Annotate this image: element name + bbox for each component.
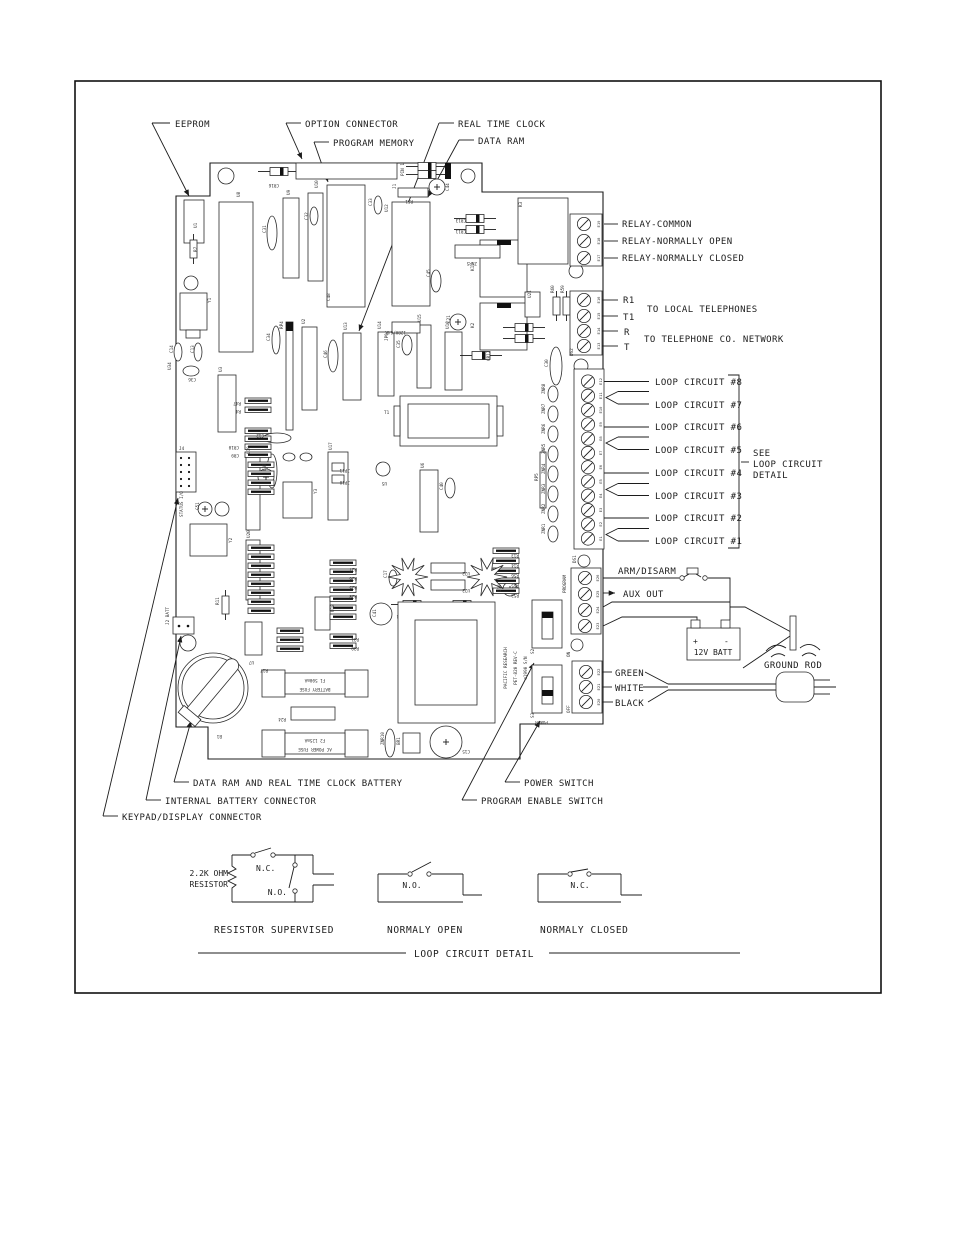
ic-outline [403, 733, 420, 753]
terminal-id: E18 [596, 237, 601, 245]
capacitor-outline [328, 340, 338, 372]
component-label: R24 [278, 716, 286, 722]
round-part [376, 462, 390, 476]
terminal-id: E6 [598, 464, 603, 469]
component-label: C12 [256, 432, 264, 438]
terminal-id: E25 [595, 591, 600, 598]
component-label: ZNR3 [541, 483, 547, 494]
ic-outline [343, 333, 361, 400]
ic-outline [315, 597, 330, 630]
component-label: C34 [266, 333, 272, 341]
component-label: U14 [377, 321, 383, 329]
component-label: C35 [396, 340, 402, 348]
ic-outline [302, 327, 317, 410]
terminal-t1: T1 [623, 313, 635, 323]
diode-outline [466, 226, 484, 234]
capacitor-outline [548, 466, 558, 482]
component-label: ZNR7 [541, 403, 547, 414]
component-label: JP10 [339, 479, 350, 485]
component-label: ZNR5 [541, 443, 547, 454]
component-label: ON [566, 651, 572, 657]
callout-power-switch: POWER SWITCH [524, 779, 594, 789]
callout-option-connector: OPTION CONNECTOR [305, 120, 398, 130]
ic-outline [219, 202, 253, 352]
terminal-id: E7 [598, 451, 603, 456]
component-label: C30 [544, 359, 550, 367]
component-label: R13 [511, 552, 519, 558]
component-label: ZNR8 [541, 383, 547, 394]
terminal-id: E8 [598, 436, 603, 441]
label-aux-out: AUX OUT [623, 590, 664, 600]
terminal-id: E14 [596, 327, 601, 335]
ic-outline [394, 406, 400, 436]
callout-clock-battery: DATA RAM AND REAL TIME CLOCK BATTERY [193, 779, 403, 789]
ic-outline [173, 617, 194, 634]
capacitor-outline [385, 729, 395, 757]
callout-data-ram: DATA RAM [478, 137, 525, 147]
ic-outline [328, 452, 348, 520]
terminal-id: E21 [596, 683, 601, 691]
terminal-id: E15 [596, 313, 601, 320]
label-loop-1: LOOP CIRCUIT #1 [655, 537, 742, 547]
terminal-id: E3 [598, 508, 603, 513]
component-label: C44 [445, 183, 451, 191]
component-label: R7 [193, 246, 199, 252]
fuse-f2-name: AC POWER FUSE [298, 746, 332, 752]
component-label: C40 [439, 482, 445, 490]
component-label: U34 [167, 362, 173, 370]
ic-outline [398, 188, 428, 197]
label-loop-2: LOOP CIRCUIT #2 [655, 514, 742, 524]
component-label: CR16 [268, 182, 279, 188]
component-label: K1 [470, 265, 476, 271]
component-label: U7 [248, 659, 254, 665]
ic-outline [180, 293, 207, 330]
component-label: C32 [304, 212, 310, 220]
detail-sw1-nc: N.C. [256, 864, 275, 873]
round-part [184, 276, 198, 290]
callout-eeprom: EEPROM [175, 120, 210, 130]
round-part [215, 502, 229, 516]
label-relay-no: RELAY-NORMALLY OPEN [622, 237, 733, 247]
capacitor-outline [548, 506, 558, 522]
component-label: Y3 [313, 488, 319, 494]
component-label: S2 [530, 648, 536, 654]
resistor-vertical [563, 297, 570, 315]
component-label: J1 [392, 183, 398, 189]
component-label: ZNR2 [541, 503, 547, 514]
note-telephone-network: TO TELEPHONE CO. NETWORK [644, 335, 784, 345]
component-label: R47 [233, 400, 241, 406]
component-label: POWER [535, 719, 548, 725]
fuse-f1-rating: F1 500mA [304, 677, 325, 683]
component-label: BR1 [396, 737, 402, 745]
diode-outline [466, 215, 484, 223]
component-label: C36 [188, 376, 196, 382]
ground-rod-icon [790, 616, 796, 650]
component-label: OFF [566, 705, 572, 713]
ic-outline [455, 245, 500, 258]
component-label: RP4 [279, 321, 285, 329]
component-label: T1 [384, 410, 390, 416]
diode-outline [270, 168, 288, 176]
detail-sw1-no: N.O. [268, 888, 287, 897]
component-label: K2 [470, 322, 476, 328]
component-label: PROGRAM [562, 574, 568, 593]
capacitor-outline [183, 366, 199, 376]
component-label: U13 [343, 322, 349, 330]
component-label: U18 [330, 604, 336, 612]
ic-outline [497, 406, 503, 436]
component-label: J4 [179, 446, 185, 452]
component-label: U6 [420, 462, 426, 468]
capacitor-outline [548, 526, 558, 542]
component-label: ZNR4 [541, 463, 547, 474]
label-loop-4: LOOP CIRCUIT #4 [655, 469, 742, 479]
capacitor-outline [550, 347, 562, 385]
terminal-id: E22 [596, 669, 601, 676]
component-label: U10 [314, 180, 320, 188]
component-label: R25 [349, 584, 357, 590]
component-label: ZNR1 [541, 523, 547, 534]
terminal-id: E10 [598, 406, 603, 414]
pcb-layout-diagram: EEPROM OPTION CONNECTOR PROGRAM MEMORY R… [0, 0, 954, 1235]
ic-outline [245, 622, 262, 655]
component-label: C13 [190, 345, 196, 353]
terminal-id: E2 [598, 522, 603, 527]
component-label: CR10 [228, 444, 239, 450]
label-loop-6: LOOP CIRCUIT #6 [655, 423, 742, 433]
see-note-2: LOOP CIRCUIT [753, 460, 823, 470]
detail-title: LOOP CIRCUIT DETAIL [414, 949, 534, 960]
detail-sw3-nc: N.C. [570, 881, 589, 890]
label-green-wire: GREEN [615, 669, 644, 679]
polarity-mark [542, 690, 553, 696]
component-label: R51 [405, 198, 413, 204]
terminal-id: E4 [598, 493, 603, 498]
capacitor-outline [374, 196, 382, 214]
terminal-id: E26 [595, 574, 600, 582]
capacitor-outline [548, 406, 558, 422]
terminal-id: E19 [596, 220, 601, 228]
terminal-r: R [624, 328, 630, 338]
terminal-id: E1 [598, 536, 603, 541]
ic-outline [540, 452, 546, 508]
ic-outline [518, 198, 568, 264]
component-label: C41 [372, 609, 378, 617]
capacitor-outline [300, 453, 312, 461]
capacitor-outline [272, 326, 280, 354]
callout-program-enable-switch: PROGRAM ENABLE SWITCH [481, 797, 603, 807]
label-loop-8: LOOP CIRCUIT #8 [655, 378, 742, 388]
component-label: R59 [560, 285, 566, 293]
terminal-r1: R1 [623, 296, 635, 306]
battery-minus-sign: - [724, 637, 729, 646]
ic-outline [262, 670, 285, 697]
component-label: C17 [383, 570, 389, 578]
component-label: R30 [351, 645, 359, 651]
component-label: U21 [527, 290, 533, 298]
capacitor-outline [310, 207, 318, 225]
callout-keypad-connector: KEYPAD/DISPLAY CONNECTOR [122, 813, 262, 823]
capacitor-outline [174, 343, 182, 361]
ic-outline [262, 730, 285, 757]
ic-outline [283, 198, 299, 278]
component-label: U23 [462, 587, 470, 593]
battery-plus-sign: + [693, 637, 698, 646]
capacitor-outline [548, 386, 558, 402]
terminal-id: E17 [596, 255, 601, 262]
component-label: C51 [195, 502, 201, 510]
label-ground-rod: GROUND ROD [764, 661, 822, 671]
terminal-id: E23 [595, 623, 600, 630]
component-label: C48 [326, 293, 332, 301]
polarity-mark [286, 322, 293, 331]
resistor-vertical [553, 297, 560, 315]
component-label: U8 [236, 191, 242, 197]
terminal-id: E9 [598, 421, 603, 426]
see-note-1: SEE [753, 449, 770, 459]
ic-outline [184, 200, 204, 243]
pushbutton-icon [687, 568, 698, 574]
component-label: U19 [246, 446, 252, 454]
component-label: C37 [262, 463, 268, 471]
component-label: U15 [417, 314, 423, 322]
component-label: C46 [323, 350, 329, 358]
resistor-vertical [222, 596, 229, 614]
silkscreen-serial: ©1990 S/N [523, 656, 529, 680]
component-label: DS1 [572, 555, 578, 563]
component-label: U16 [445, 321, 451, 329]
component-label: CR13 [455, 217, 466, 223]
capacitor-outline [267, 216, 277, 250]
diode-outline [418, 171, 436, 179]
terminal-id: E5 [598, 479, 603, 484]
fuse-f2-rating: F2 125mA [304, 737, 325, 743]
detail-sw2-no: N.O. [402, 881, 421, 890]
component-label: R4 [235, 408, 241, 414]
component-label: ZNR5 [466, 260, 477, 266]
component-label: ZNR6 [541, 423, 547, 434]
ic-outline [186, 330, 200, 338]
ic-outline [190, 524, 227, 556]
component-label: R31 [351, 636, 359, 642]
component-label: R26 [349, 575, 357, 581]
callout-program-memory: PROGRAM MEMORY [333, 139, 415, 149]
component-label: STATUS I/O [179, 491, 185, 517]
diagram-page: EEPROM OPTION CONNECTOR PROGRAM MEMORY R… [0, 0, 954, 1235]
component-label: C15 [462, 748, 470, 754]
callout-internal-battery: INTERNAL BATTERY CONNECTOR [165, 797, 316, 807]
polarity-mark [542, 612, 553, 618]
capacitor-outline [402, 335, 412, 355]
terminal-id: E13 [596, 343, 601, 350]
silkscreen-brand: PACIFIC RESEARCH [503, 647, 509, 689]
ic-outline [417, 325, 431, 388]
capacitor-outline [445, 478, 455, 498]
ic-outline [283, 482, 312, 518]
component-label: R53 [511, 592, 519, 598]
component-label: C33 [368, 198, 374, 206]
label-relay-nc: RELAY-NORMALLY CLOSED [622, 254, 744, 264]
component-label: U1 [193, 222, 199, 228]
component-label: R27 [349, 566, 357, 572]
caption-normaly-open: NORMALY OPEN [387, 925, 463, 936]
ic-outline [291, 707, 335, 720]
component-label: D16 [497, 584, 503, 592]
component-label: PIN 1 [400, 163, 406, 176]
ic-outline [431, 580, 465, 590]
component-label: CR9 [231, 452, 239, 458]
component-label: CR11 [455, 228, 466, 234]
diode-outline [515, 324, 533, 332]
fuse-f1-name: BATTERY FUSE [299, 686, 330, 692]
detail-resistor-value: 2.2K OHM [189, 869, 228, 878]
label-relay-common: RELAY-COMMON [622, 220, 692, 230]
component-label: R60 [550, 285, 556, 293]
component-label: CR12 [486, 350, 492, 361]
caption-normaly-closed: NORMALY CLOSED [540, 925, 628, 936]
component-label: RP5 [534, 473, 540, 481]
component-label: ZNR10 [380, 732, 386, 745]
round-part [578, 555, 590, 567]
component-label: 128K/64K [385, 329, 406, 335]
ac-plug-icon [776, 672, 814, 702]
component-label: R28 [349, 593, 357, 599]
label-black-wire: BLACK [615, 699, 644, 709]
ic-outline [176, 452, 196, 492]
label-loop-3: LOOP CIRCUIT #3 [655, 492, 742, 502]
component-label: B1 [216, 733, 222, 739]
label-loop-7: LOOP CIRCUIT #7 [655, 401, 742, 411]
detail-resistor-word: RESISTOR [189, 880, 228, 889]
component-label: R56 [511, 572, 519, 578]
ic-outline [420, 470, 438, 532]
ic-outline [308, 193, 323, 281]
capacitor-outline [548, 486, 558, 502]
silkscreen-model: PET-820 REV-C [513, 651, 519, 685]
component-label: R14 [511, 562, 519, 568]
label-12v-batt: 12V BATT [694, 648, 733, 657]
component-label: U9 [286, 189, 292, 195]
label-arm-disarm: ARM/DISARM [618, 567, 676, 577]
capacitor-outline [548, 446, 558, 462]
component-label: Y1 [207, 297, 213, 303]
component-label: R11 [215, 597, 221, 605]
component-label: U12 [384, 204, 390, 212]
see-note-3: DETAIL [753, 471, 788, 481]
terminal-id: E20 [596, 698, 601, 706]
capacitor-outline [283, 453, 295, 461]
component-label: S3 [530, 712, 536, 718]
terminal-id: E24 [595, 606, 600, 614]
ic-outline [345, 730, 368, 757]
ic-outline [445, 332, 462, 390]
polarity-mark [497, 240, 511, 245]
component-label: Y2 [228, 537, 234, 543]
diode-outline [418, 163, 436, 171]
component-label: R55 [511, 582, 519, 588]
component-label: U5 [381, 480, 387, 486]
terminal-id: E16 [596, 296, 601, 304]
component-label: JP11 [339, 467, 350, 473]
component-label: U20 [246, 530, 252, 538]
component-label: C14 [169, 345, 175, 353]
terminal-id: E11 [598, 392, 603, 400]
ic-outline [431, 563, 465, 573]
component-label: U17 [328, 442, 334, 450]
ic-outline [345, 670, 368, 697]
component-label: C31 [262, 225, 268, 233]
caption-resistor-supervised: RESISTOR SUPERVISED [214, 925, 334, 936]
ic-outline [392, 202, 430, 306]
component-label: K3 [518, 201, 524, 207]
capacitor-outline [431, 270, 441, 292]
callout-real-time-clock: REAL TIME CLOCK [458, 120, 545, 130]
ic-outline [408, 404, 489, 438]
component-label: DS2 [569, 348, 575, 356]
diode-outline [515, 335, 533, 343]
label-loop-5: LOOP CIRCUIT #5 [655, 446, 742, 456]
component-label: U3 [218, 366, 224, 372]
ic-outline [286, 322, 293, 430]
polarity-mark [497, 303, 511, 308]
component-label: C45 [426, 269, 432, 277]
label-white-wire: WHITE [615, 684, 644, 694]
ic-outline [327, 185, 365, 307]
component-label: J2 BATT [165, 606, 171, 625]
terminal-t: T [624, 343, 630, 353]
note-local-telephones: TO LOCAL TELEPHONES [647, 305, 758, 315]
component-label: U2 [301, 318, 307, 324]
terminal-id: E12 [598, 378, 603, 385]
component-label: R17 [260, 667, 268, 673]
capacitor-outline [548, 426, 558, 442]
component-label: U22 [462, 570, 470, 576]
